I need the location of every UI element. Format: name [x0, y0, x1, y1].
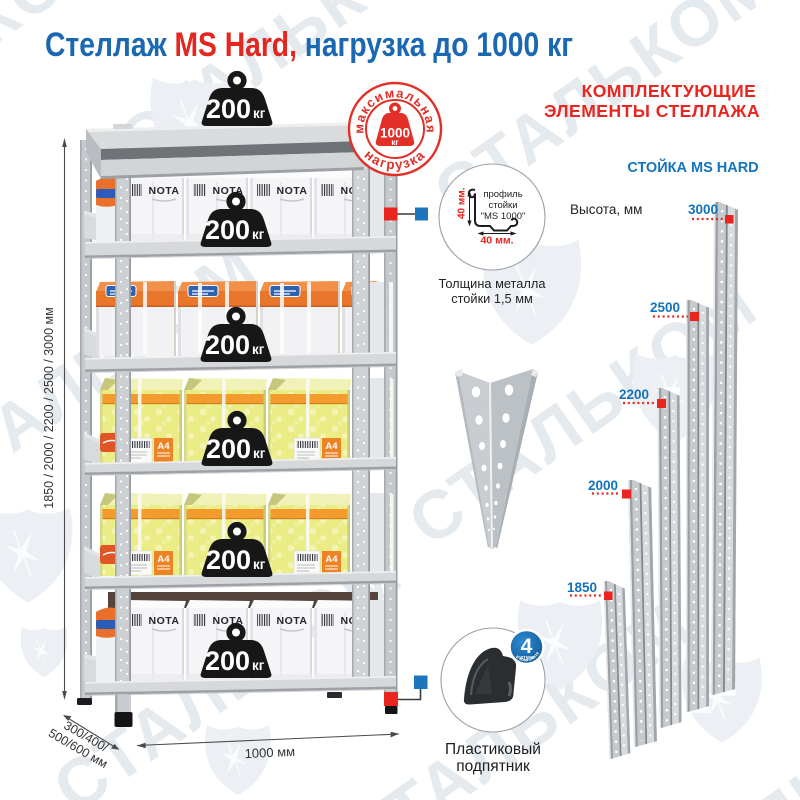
svg-text:1000 мм: 1000 мм: [244, 744, 295, 761]
svg-text:подпятник: подпятник: [456, 758, 530, 775]
svg-text:NOTA: NOTA: [149, 185, 180, 197]
svg-text:200: 200: [205, 215, 250, 245]
svg-text:Высота, мм: Высота, мм: [570, 202, 642, 217]
svg-text:40 мм.: 40 мм.: [480, 235, 513, 247]
svg-text:стойки 1,5 мм: стойки 1,5 мм: [451, 291, 533, 306]
svg-text:кг: кг: [391, 138, 399, 147]
svg-text:NOTA: NOTA: [277, 615, 308, 627]
svg-text:1850 / 2000 / 2200 / 2500 / 30: 1850 / 2000 / 2200 / 2500 / 3000 мм: [42, 307, 56, 508]
svg-text:1850: 1850: [567, 580, 597, 595]
svg-text:кг: кг: [252, 342, 265, 357]
svg-text:A4: A4: [157, 554, 170, 565]
svg-text:Стеллаж MS Hard, нагрузка до 1: Стеллаж MS Hard, нагрузка до 1000 кг: [45, 26, 573, 64]
svg-text:40 мм.: 40 мм.: [457, 187, 468, 219]
svg-text:профиль: профиль: [483, 189, 522, 200]
svg-text:A4: A4: [325, 554, 338, 565]
svg-text:200: 200: [205, 646, 250, 676]
svg-text:A4: A4: [325, 441, 338, 452]
svg-text:ЭЛЕМЕНТЫ СТЕЛЛАЖА: ЭЛЕМЕНТЫ СТЕЛЛАЖА: [544, 101, 760, 121]
svg-text:кг: кг: [252, 658, 265, 673]
svg-text:"MS 1000": "MS 1000": [481, 211, 526, 222]
svg-text:СТОЙКА MS HARD: СТОЙКА MS HARD: [627, 158, 758, 176]
svg-text:200: 200: [206, 94, 251, 124]
svg-text:2500: 2500: [650, 300, 680, 315]
svg-text:Пластиковый: Пластиковый: [445, 741, 541, 758]
svg-text:A4: A4: [157, 441, 170, 452]
svg-text:кг: кг: [253, 557, 266, 572]
svg-text:200: 200: [205, 330, 250, 360]
svg-text:стойки: стойки: [488, 200, 517, 211]
svg-text:кг: кг: [252, 227, 265, 242]
svg-text:кг: кг: [253, 446, 266, 461]
svg-text:кг: кг: [253, 106, 266, 121]
svg-text:200: 200: [206, 545, 251, 575]
svg-text:КОМПЛЕКТУЮЩИЕ: КОМПЛЕКТУЮЩИЕ: [582, 81, 757, 101]
svg-text:2000: 2000: [588, 478, 618, 493]
svg-text:NOTA: NOTA: [277, 185, 308, 197]
svg-text:Толщина металла: Толщина металла: [439, 276, 547, 291]
svg-text:3000: 3000: [688, 202, 718, 217]
svg-text:2200: 2200: [619, 387, 649, 402]
svg-text:200: 200: [206, 434, 251, 464]
svg-text:NOTA: NOTA: [149, 615, 180, 627]
